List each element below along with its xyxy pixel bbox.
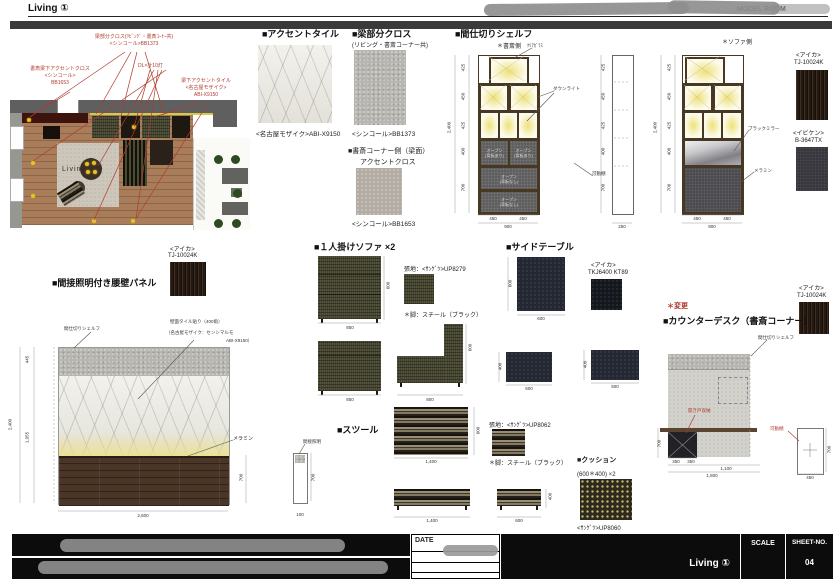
study-cloth-swatch — [356, 168, 402, 215]
dim-label: 600 — [476, 418, 481, 444]
dim-label: 700 — [657, 431, 662, 457]
sofa-front-view2 — [318, 341, 381, 391]
shelf-study-side-label: ＊書斎側 — [497, 41, 521, 50]
plan-panel-dark — [121, 116, 140, 138]
desk-side-view — [797, 428, 824, 475]
aica-code-label: TJ-10024K — [794, 60, 823, 66]
plan-curtain — [123, 140, 147, 186]
study-cloth-title2: アクセントクロス — [360, 157, 416, 167]
dim-label: 400 — [461, 139, 466, 165]
dim-label: 700 — [667, 175, 672, 201]
annotation-text: 書斎梁下アクセントクロス — [30, 66, 90, 72]
dim-label: 1,400 — [415, 518, 449, 523]
plan-outdoor-sofa — [222, 168, 248, 184]
dim-label: 600 — [502, 518, 536, 523]
header-rule — [28, 16, 828, 17]
dim-label: 600 — [524, 316, 558, 321]
sofa-front-view — [318, 256, 381, 319]
dim-label: 400 — [601, 139, 606, 165]
redaction-scribble — [484, 2, 689, 16]
panel-section-view — [293, 453, 308, 504]
panel-melamine-annotation: メラミン — [233, 435, 253, 442]
dim-label: 850 — [333, 397, 367, 402]
annotation-text: 梁下アクセントタイル — [181, 78, 231, 84]
redaction-scribble — [668, 0, 780, 15]
aica-brand-label: <アイカ> — [796, 50, 821, 59]
dim-label: 450 — [506, 216, 540, 221]
shelf-mirror-annotation: ブラックミラー — [748, 126, 780, 132]
dim-label: 850 — [333, 325, 367, 330]
plan-door-opening — [57, 100, 79, 113]
dim-label: 425 — [667, 113, 672, 139]
annotation-text: ABI-X9150 — [194, 92, 218, 98]
beam-cloth-title: ■梁部分クロス — [352, 27, 411, 40]
panel-tile-annotation1: 壁面タイル貼り（400角） — [170, 319, 223, 325]
dim-label: 100 — [283, 512, 317, 517]
plan-plant — [233, 189, 242, 198]
dim-label: 425 — [461, 113, 466, 139]
dim-label: 425 — [601, 113, 606, 139]
sidetable-side-view — [591, 350, 639, 380]
sofa-side-back — [444, 324, 463, 383]
shelf-melamine-annotation: メラミン — [754, 168, 772, 174]
cushion-size-label: (600＊400) ×2 — [577, 469, 616, 478]
dim-label: 450 — [680, 216, 714, 221]
plan-annotation-tile: 梁下アクセントタイル <名古屋モザイク> ABI-X9150 — [168, 78, 244, 99]
shelf-glass-annotation: ｸﾘｱｶﾞﾗｽ — [527, 43, 543, 49]
plan-room-label: Living — [62, 166, 86, 173]
sofa-side-seat — [397, 356, 446, 383]
stool-front-view — [394, 489, 470, 506]
redaction-scribble — [770, 4, 830, 14]
open-label: (背板なし) — [500, 179, 519, 184]
open-label: (背板あり) — [485, 153, 504, 158]
panel-shelf-annotation: 間仕切りシェルフ — [64, 326, 100, 332]
dim-label: 400 — [667, 139, 672, 165]
plan-panel — [142, 116, 170, 138]
scale-label: SCALE — [741, 540, 785, 547]
cushion-swatch — [580, 479, 632, 520]
plan-desk-block — [150, 140, 173, 165]
dim-label: 2,400 — [447, 115, 452, 141]
sidetable-top-view — [517, 257, 565, 311]
dim-label: 450 — [793, 475, 827, 480]
sidetable-front-view — [506, 352, 552, 382]
study-cloth-title1: ■書斎コーナー側（梁面） — [348, 146, 429, 156]
dim-label: 700 — [311, 465, 316, 491]
shelf-sofa-side-label: ＊ソファ側 — [722, 37, 752, 46]
dim-label: 900 — [695, 224, 729, 229]
titleblock-company-area — [12, 534, 410, 579]
stool-side-view — [497, 489, 541, 506]
plan-annotation-study: 書斎梁下アクセントクロス <シンコール> BB1653 — [14, 66, 106, 87]
aica-code-label: TJ-10024K — [168, 253, 197, 259]
ibiken-code-label: B-3647TX — [795, 138, 822, 144]
titleblock-sheet-cell: SHEET-NO. 04 — [786, 534, 833, 579]
dim-label: 450 — [461, 84, 466, 110]
plan-annotation-beam: 梁部分クロス(ﾘﾋﾞﾝｸﾞ・書斎ｺｰﾅｰ共) <シンコール>BB1373 — [78, 34, 190, 48]
annotation-text: <名古屋モザイク> — [186, 85, 227, 91]
stool-top-view — [394, 407, 468, 455]
aica-wood-swatch — [796, 70, 828, 120]
beam-cloth-caption: <シンコール>BB1373 — [352, 128, 415, 138]
beam-cloth-subtitle: (リビング・書斎コーナー共) — [352, 40, 428, 49]
desk-cabinet — [668, 432, 697, 458]
stool-legs-label: ＊脚：スチール（ブラック） — [489, 458, 567, 467]
shelf-title: ■間仕切りシェルフ — [455, 27, 532, 40]
panel-light-annotation: 間接照明 — [303, 439, 321, 445]
open-label: (背板あり) — [514, 153, 533, 158]
aica-brand-label: <アイカ> — [799, 283, 824, 292]
plan-light-strip — [90, 113, 213, 115]
titleblock-project-cell: Living ① — [501, 534, 740, 579]
plan-cabinet — [43, 126, 60, 139]
cushion-title: ■クッション — [577, 455, 616, 465]
dim-label: 600 — [468, 335, 473, 361]
plan-panel-dark — [172, 116, 190, 138]
sofa-legs-label: ＊脚：スチール（ブラック） — [404, 310, 482, 319]
plan-beam — [22, 113, 88, 123]
study-cloth-caption: <シンコール>BB1653 — [352, 218, 415, 228]
plan-plant — [214, 219, 223, 228]
dim-label: 900 — [491, 224, 525, 229]
dim-label: 700 — [239, 465, 244, 491]
plan-plant — [214, 155, 223, 164]
dim-label: 800 — [413, 397, 447, 402]
dim-label: 250 — [605, 224, 639, 229]
dim-label: 500 — [598, 384, 632, 389]
dim-label: 450 — [667, 84, 672, 110]
dim-label: 425 — [667, 55, 672, 81]
shelf-study-elevation: オープン(背板あり) オープン(背板あり) オープン(背板なし) オープン(背板… — [478, 55, 540, 215]
annotation-text: BB1653 — [51, 80, 69, 86]
dim-label: 400 — [498, 354, 503, 380]
dim-label: 400 — [583, 352, 588, 378]
dim-label: 1,800 — [695, 473, 729, 478]
ibiken-brand-label: <イビケン> — [793, 128, 824, 137]
annotation-text: 梁部分クロス(ﾘﾋﾞﾝｸﾞ・書斎ｺｰﾅｰ共) — [95, 34, 173, 40]
dim-label: 2,600 — [126, 513, 160, 518]
accent-tile-swatch — [258, 45, 332, 123]
plan-wall-top — [10, 100, 237, 113]
desk-shelf-annotation: 間仕切りシェルフ — [758, 335, 794, 341]
dim-label: 700 — [461, 175, 466, 201]
shelf-section-view — [612, 55, 634, 215]
aica-wood-swatch — [170, 262, 206, 296]
dim-label: 700 — [827, 437, 832, 463]
aica-brand-label: <アイカ> — [170, 244, 195, 253]
dim-label: 350 — [674, 459, 708, 464]
dim-label: 425 — [601, 55, 606, 81]
sofa-fabric-label: 張地：<ｻﾝｹﾞﾂ>UP8279 — [404, 264, 466, 273]
header-bar — [10, 21, 832, 29]
plan-wall-corner — [213, 113, 237, 127]
ibiken-swatch — [796, 147, 828, 191]
dim-label: 425 — [461, 55, 466, 81]
beam-cloth-swatch — [354, 50, 406, 125]
dim-label: 1,955 — [25, 425, 30, 451]
dim-label: 1,400 — [414, 459, 448, 464]
plan-annotation-dl: DL×計10灯 — [138, 62, 163, 69]
aica-brand-label: <アイカ> — [591, 260, 616, 269]
plan-outdoor-sofa — [222, 202, 248, 215]
plan-plant — [232, 219, 241, 228]
dim-label: 2,400 — [8, 412, 13, 438]
page-title: Living ① — [28, 3, 69, 14]
dim-label: 400 — [548, 484, 553, 510]
panel-tile-annotation2: （名古屋モザイク：センシマルモ — [166, 330, 233, 336]
dim-label: 700 — [601, 175, 606, 201]
plan-plant — [231, 155, 240, 164]
desk-change-note: ＊変更 — [667, 301, 688, 311]
sofa-title: ■１人掛けソファ ×2 — [314, 240, 395, 253]
sheet-no-label: SHEET-NO. — [786, 539, 833, 546]
desk-title: ■カウンターデスク（書斎コーナー） — [663, 314, 812, 327]
stool-fabric-label: 張地：<ｻﾝｹﾞﾂ>UP8062 — [489, 420, 551, 429]
plan-panel — [92, 116, 119, 138]
desk-movable-annotation: 可動棚 — [770, 426, 784, 432]
date-label: DATE — [415, 537, 434, 544]
cushion-caption: <ｻﾝｹﾞﾂ>UP8060 — [577, 523, 621, 532]
plan-window — [10, 178, 24, 202]
aica-code-label: TJ-10024K — [797, 293, 826, 299]
dim-label: 450 — [601, 84, 606, 110]
dim-label: 600 — [508, 271, 513, 297]
dim-label: 2,400 — [653, 115, 658, 141]
panel-title: ■間接照明付き腰壁パネル — [52, 276, 156, 289]
drawing-sheet: Living ① MODEL ROOM Living 梁部分クロス(ﾘﾋﾞﾝｸﾞ… — [0, 0, 835, 588]
sofa-fabric-swatch — [404, 274, 434, 304]
accent-tile-title: ■アクセントタイル — [262, 27, 339, 40]
sidetable-title: ■サイドテーブル — [506, 240, 574, 253]
aica2-swatch — [591, 279, 622, 310]
dim-label: 600 — [386, 273, 391, 299]
plan-planter — [196, 150, 205, 220]
dim-label: 1,100 — [709, 466, 743, 471]
project-name: Living ① — [689, 558, 730, 569]
sheet-no-value: 04 — [786, 558, 833, 567]
dim-label: 450 — [476, 216, 510, 221]
panel-elevation — [58, 347, 230, 505]
titleblock-date-cell: DATE — [411, 534, 500, 579]
aica2-code-label: TKJ6400 KT89 — [588, 270, 628, 276]
dim-label: 445 — [25, 347, 30, 373]
stool-title: ■スツール — [337, 423, 378, 436]
annotation-text: <シンコール> — [45, 73, 76, 79]
dim-label: 600 — [512, 386, 546, 391]
shelf-downlight-annotation: ダウンライト — [553, 86, 580, 92]
titleblock-scale-cell: SCALE — [741, 534, 785, 579]
plan-window — [10, 126, 24, 150]
annotation-text: <シンコール>BB1373 — [110, 41, 159, 47]
accent-tile-caption: <名古屋モザイク>ABI-X9150 — [256, 128, 340, 138]
panel-tile-annotation3: ABI-X9150） — [226, 338, 252, 344]
shelf-sofa-elevation — [682, 55, 744, 215]
desk-cabinet-annotation: 開き戸収納 — [688, 408, 711, 414]
dim-label: 450 — [710, 216, 744, 221]
open-label: (背板なし) — [500, 202, 519, 207]
stool-fabric-swatch — [492, 429, 525, 456]
